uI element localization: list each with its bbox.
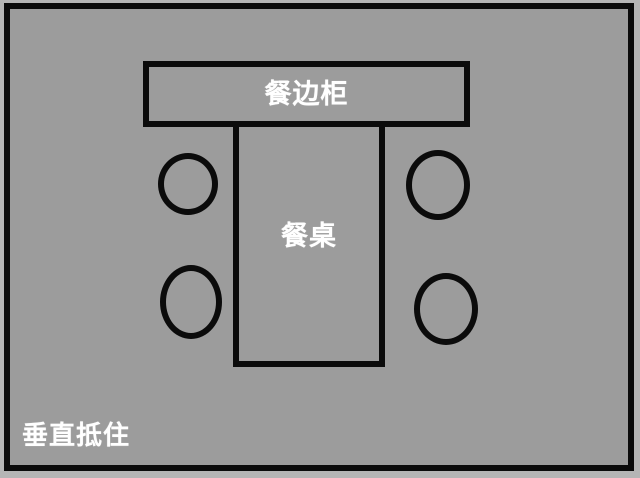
room-outline: 餐边柜 餐桌 垂直抵住 [4,3,634,471]
dining-table-label: 餐桌 [281,221,337,252]
dining-table-label-wrap: 餐桌 [239,223,379,250]
chair-bottom-left [160,265,222,339]
annotation-label: 垂直抵住 [22,423,130,449]
chair-top-right [406,150,470,220]
chair-top-left [158,153,218,215]
chair-bottom-right [414,273,478,345]
sideboard-label: 餐边柜 [265,81,349,108]
floor-plan-diagram: 餐边柜 餐桌 垂直抵住 [0,0,640,478]
dining-table: 餐桌 [233,127,385,367]
sideboard: 餐边柜 [143,61,470,127]
